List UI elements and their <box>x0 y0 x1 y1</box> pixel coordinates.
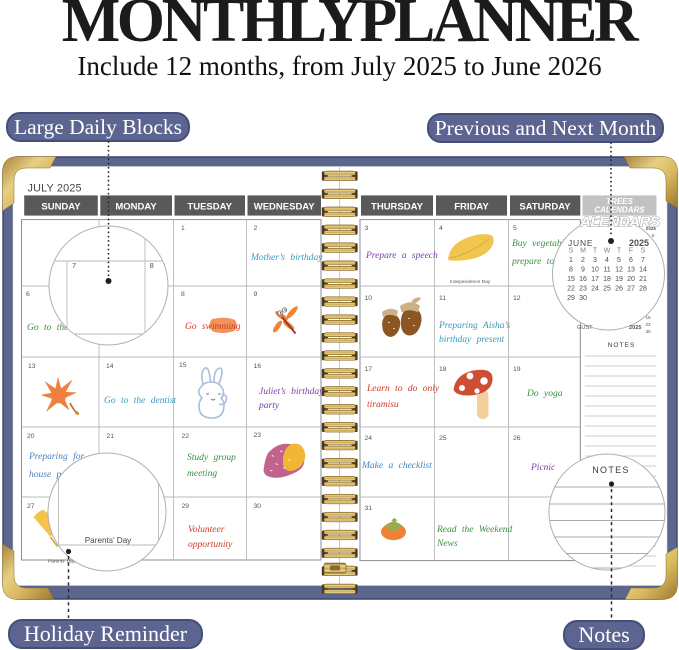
svg-text:THURSDAY: THURSDAY <box>371 202 424 213</box>
svg-text:29: 29 <box>182 503 190 510</box>
svg-text:24: 24 <box>591 286 599 293</box>
svg-text:30: 30 <box>254 503 262 510</box>
svg-text:2025: 2025 <box>629 325 641 331</box>
svg-text:2025: 2025 <box>629 238 649 248</box>
svg-text:1: 1 <box>569 257 573 264</box>
svg-text:20: 20 <box>627 276 635 283</box>
svg-text:18: 18 <box>603 276 611 283</box>
svg-text:Do yoga: Do yoga <box>526 389 563 399</box>
svg-text:26: 26 <box>513 435 521 442</box>
svg-text:JULY 2025: JULY 2025 <box>28 183 82 195</box>
svg-text:T: T <box>593 248 598 255</box>
svg-text:S: S <box>651 233 654 238</box>
svg-text:19: 19 <box>615 276 623 283</box>
svg-text:Volunteer: Volunteer <box>188 525 225 535</box>
svg-text:SUNDAY: SUNDAY <box>41 202 81 213</box>
svg-text:F: F <box>629 248 633 255</box>
svg-text:T: T <box>617 248 622 255</box>
svg-text:GUST: GUST <box>577 325 593 331</box>
svg-text:13: 13 <box>28 363 36 370</box>
svg-text:16: 16 <box>579 276 587 283</box>
svg-text:M: M <box>580 248 586 255</box>
svg-text:10: 10 <box>591 267 599 274</box>
svg-text:Juliet’s birthday: Juliet’s birthday <box>259 387 324 397</box>
svg-text:13: 13 <box>627 267 635 274</box>
svg-text:3: 3 <box>365 225 369 232</box>
svg-text:1: 1 <box>181 225 185 232</box>
svg-text:NOTES: NOTES <box>592 465 630 475</box>
svg-text:meeting: meeting <box>187 469 217 479</box>
svg-text:25: 25 <box>603 286 611 293</box>
svg-text:14: 14 <box>106 363 114 370</box>
svg-text:MONDAY: MONDAY <box>115 202 157 213</box>
svg-text:Read the Weekend: Read the Weekend <box>436 525 513 535</box>
svg-text:23: 23 <box>645 322 651 327</box>
svg-text:10: 10 <box>365 295 373 302</box>
svg-text:12: 12 <box>513 295 521 302</box>
svg-text:ALENDARS: ALENDARS <box>579 214 660 231</box>
svg-text:opportunity: opportunity <box>188 540 233 550</box>
svg-text:28: 28 <box>639 286 647 293</box>
svg-text:24: 24 <box>365 435 373 442</box>
svg-text:Learn to do only: Learn to do only <box>366 384 440 394</box>
svg-text:14: 14 <box>639 267 647 274</box>
svg-text:11: 11 <box>439 295 446 302</box>
svg-text:8: 8 <box>150 261 154 270</box>
svg-text:25: 25 <box>439 435 447 442</box>
svg-text:8: 8 <box>569 267 573 274</box>
svg-text:3: 3 <box>593 257 597 264</box>
svg-text:JUNE: JUNE <box>568 238 593 248</box>
svg-text:17: 17 <box>591 276 599 283</box>
svg-text:Make a checklist: Make a checklist <box>361 461 432 471</box>
svg-text:30: 30 <box>579 295 587 302</box>
svg-text:21: 21 <box>639 276 647 283</box>
svg-text:11: 11 <box>603 267 610 274</box>
svg-text:7: 7 <box>641 257 645 264</box>
svg-text:27: 27 <box>627 286 635 293</box>
svg-text:5: 5 <box>617 257 621 264</box>
svg-text:7: 7 <box>72 261 76 270</box>
svg-text:23: 23 <box>254 432 262 439</box>
svg-text:4: 4 <box>439 225 443 232</box>
svg-text:27: 27 <box>27 503 35 510</box>
svg-text:19: 19 <box>513 366 521 373</box>
svg-text:30: 30 <box>645 329 651 334</box>
svg-text:Go to the dentist: Go to the dentist <box>104 396 176 406</box>
svg-text:15: 15 <box>567 276 575 283</box>
svg-text:6: 6 <box>26 291 30 298</box>
svg-text:29: 29 <box>567 295 575 302</box>
svg-text:Go swimming: Go swimming <box>185 322 241 332</box>
svg-text:NOTES: NOTES <box>608 342 636 349</box>
svg-text:23: 23 <box>579 286 587 293</box>
svg-text:4: 4 <box>605 257 609 264</box>
svg-text:W: W <box>604 248 611 255</box>
svg-text:31: 31 <box>365 505 373 512</box>
svg-text:Independence Day: Independence Day <box>450 279 491 285</box>
svg-text:FRIDAY: FRIDAY <box>454 202 489 213</box>
svg-text:TUESDAY: TUESDAY <box>187 202 232 213</box>
svg-text:Mother’s birthday: Mother’s birthday <box>250 253 323 263</box>
svg-text:17: 17 <box>365 366 373 373</box>
svg-text:5: 5 <box>513 225 517 232</box>
svg-text:2: 2 <box>254 225 258 232</box>
svg-text:21: 21 <box>107 433 115 440</box>
svg-text:Prepare a speech: Prepare a speech <box>365 251 438 261</box>
svg-text:Preparing for: Preparing for <box>28 451 84 462</box>
svg-text:16: 16 <box>254 363 262 370</box>
svg-text:Preparing Aisha’s: Preparing Aisha’s <box>438 321 510 331</box>
svg-text:9: 9 <box>581 267 585 274</box>
svg-text:8: 8 <box>181 291 185 298</box>
svg-text:Study group: Study group <box>187 453 236 463</box>
svg-text:26: 26 <box>615 286 623 293</box>
svg-text:WEDNESDAY: WEDNESDAY <box>254 202 316 213</box>
svg-text:20: 20 <box>27 433 35 440</box>
svg-text:tiramisu: tiramisu <box>367 400 399 410</box>
svg-text:16: 16 <box>645 315 651 320</box>
svg-text:party: party <box>258 401 280 411</box>
svg-text:18: 18 <box>439 366 447 373</box>
svg-text:2: 2 <box>581 257 585 264</box>
svg-text:SATURDAY: SATURDAY <box>519 202 571 213</box>
svg-text:15: 15 <box>179 362 187 369</box>
svg-text:S: S <box>569 248 574 255</box>
svg-text:22: 22 <box>182 433 190 440</box>
svg-text:6: 6 <box>629 257 633 264</box>
svg-text:12: 12 <box>615 267 623 274</box>
svg-text:9: 9 <box>254 291 258 298</box>
svg-text:birthday present: birthday present <box>439 335 505 345</box>
svg-text:Parents’ Day: Parents’ Day <box>85 536 132 545</box>
svg-text:News: News <box>436 539 458 549</box>
svg-text:22: 22 <box>567 286 575 293</box>
svg-text:Picnic: Picnic <box>530 463 556 473</box>
svg-text:S: S <box>641 248 646 255</box>
svg-text:prepare to: prepare to <box>511 257 554 267</box>
